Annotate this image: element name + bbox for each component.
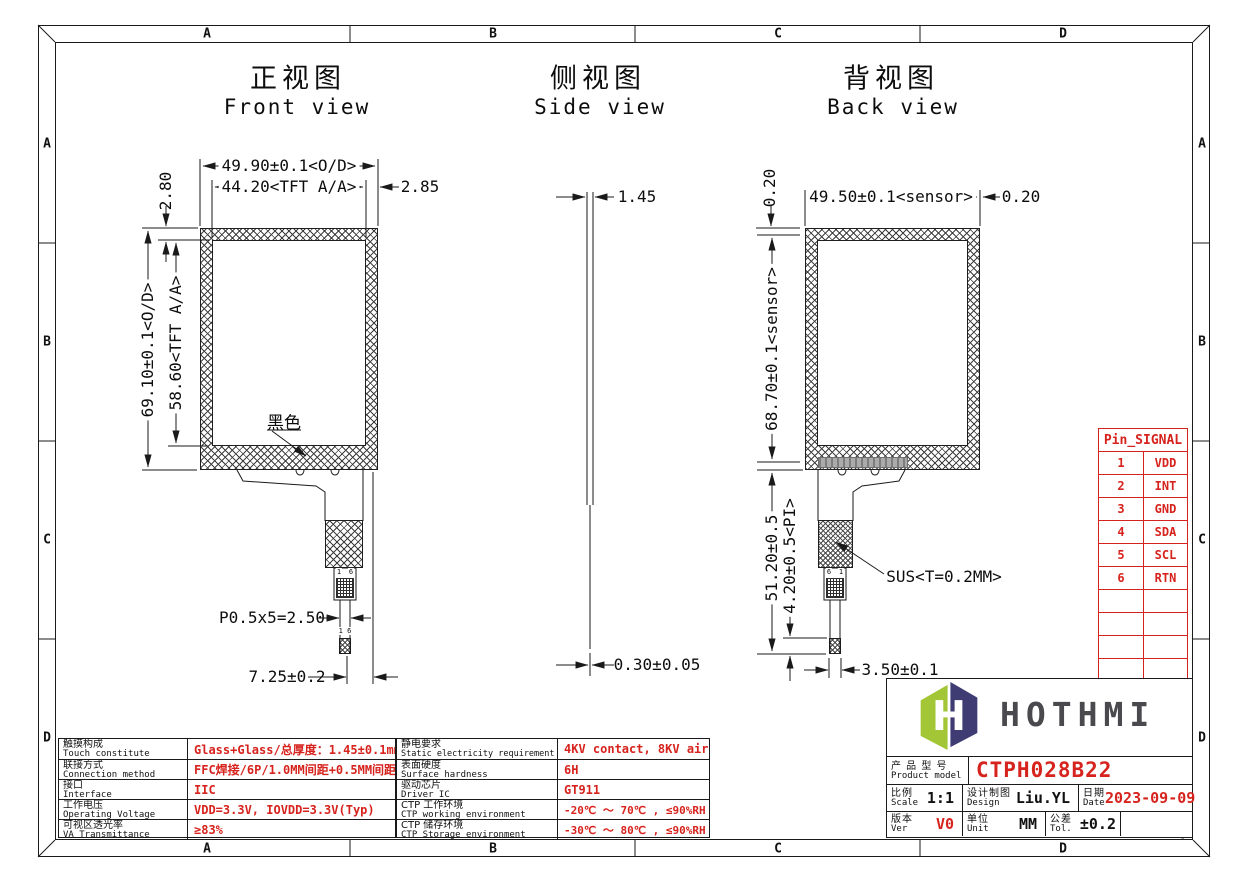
front-black-print-label: 黑色 xyxy=(267,409,301,434)
front-view-title-en: Front view xyxy=(224,95,370,119)
unit-value: MM xyxy=(1019,815,1037,833)
spec-row-surface-hardness: 表面硬度Surface hardness 6H xyxy=(397,759,709,779)
side-ffc-thickness-dim: 0.30±0.05 xyxy=(614,656,701,674)
pin-row-1: 1 VDD xyxy=(1099,451,1187,474)
frame-row-left-b: B xyxy=(43,335,51,350)
design-cell: 设计制图 Design Liu.YL xyxy=(963,785,1078,811)
svg-text:H: H xyxy=(932,692,966,740)
front-tail-stiffener xyxy=(325,520,363,568)
pin-row-empty xyxy=(1099,635,1187,658)
back-tail-tip xyxy=(829,638,841,654)
scale-value: 1:1 xyxy=(927,789,954,807)
design-value: Liu.YL xyxy=(1016,789,1070,807)
version-cell: 版本 Ver V0 xyxy=(887,812,962,836)
product-model-value: CTPH028B22 xyxy=(976,758,1112,782)
spec-row-static-electricity: 静电要求Static electricity requirement 4KV c… xyxy=(397,739,709,759)
date-value: 2023-09-09 xyxy=(1105,789,1195,807)
front-pin6-label: 6 xyxy=(348,568,354,576)
pin-signal-table: Pin_SIGNAL 1 VDD 2 INT 3 GND 4 SDA 5 SCL… xyxy=(1098,428,1188,680)
scale-cell: 比例 Scale 1:1 xyxy=(887,785,962,811)
back-sensor-width-dim: 49.50±0.1<sensor> xyxy=(806,188,976,206)
pin-row-5: 5 SCL xyxy=(1099,543,1187,566)
frame-col-top-c: C xyxy=(774,27,782,42)
frame-col-top-a: A xyxy=(203,27,211,42)
frame-row-right-a: A xyxy=(1198,137,1206,152)
back-sus-label: SUS<T=0.2MM> xyxy=(886,568,1002,586)
frame-row-right-c: C xyxy=(1198,533,1206,548)
back-margin-top-dim: 0.20 xyxy=(761,169,779,208)
frame-row-right-b: B xyxy=(1198,335,1206,350)
spec-table-left: 触摸构成Touch constitute Glass+Glass/总厚度：1.4… xyxy=(58,738,396,838)
back-bonding-pad xyxy=(818,457,908,468)
brand-name: HOTHMI xyxy=(1000,695,1155,734)
side-view-title-cn: 侧视图 xyxy=(550,57,646,96)
front-aa-width-dim: 44.20<TFT A/A> xyxy=(219,178,360,196)
frame-row-left-c: C xyxy=(43,533,51,548)
spec-row-working-environment: CTP 工作环境CTP working environment -20℃ ～ 7… xyxy=(397,799,709,819)
frame-col-top-b: B xyxy=(489,27,497,42)
back-view-sensor-area xyxy=(817,240,968,446)
front-aa-height-dim: 58.60<TFT A/A> xyxy=(167,273,185,414)
front-top-margin-dim: 2.80 xyxy=(157,172,175,211)
back-tip-width-dim: 3.50±0.1 xyxy=(861,661,938,679)
tolerance-cell: 公差 Tol. ±0.2 xyxy=(1046,812,1120,836)
pin-row-empty xyxy=(1099,612,1187,635)
front-od-width-dim: 49.90±0.1<O/D> xyxy=(219,157,360,175)
spec-row-storage-environment: CTP 储存环境CTP Storage environment -30℃ ～ 8… xyxy=(397,819,709,839)
back-pin1-label: 1 xyxy=(838,568,844,576)
back-connector-pins xyxy=(826,578,844,598)
frame-col-bottom-d: D xyxy=(1059,842,1067,857)
front-pin1-label: 1 xyxy=(336,568,342,576)
hothmi-logo-icon: H xyxy=(903,682,995,750)
spec-row-va-transmittance: 可视区透光率VA Transmittance ≥83% xyxy=(59,819,395,839)
front-view-title-cn: 正视图 xyxy=(250,57,346,96)
unit-cell: 单位 Unit MM xyxy=(963,812,1045,836)
front-tail-tip xyxy=(339,638,351,654)
spec-row-interface: 接口Interface IIC xyxy=(59,779,395,799)
spec-row-connection-method: 联接方式Connection method FFC焊接/6P/1.0MM间距+0… xyxy=(59,759,395,779)
front-pitch-dim: P0.5x5=2.50 xyxy=(219,609,325,627)
back-margin-right-dim: 0.20 xyxy=(1002,188,1041,206)
back-view-title-en: Back view xyxy=(827,95,959,119)
product-model-label: 产 品 型 号 Product model xyxy=(887,757,968,784)
version-value: V0 xyxy=(936,815,954,833)
pin-row-empty xyxy=(1099,589,1187,612)
engineering-drawing-page: A B C D A B C D A B C D A B C D 正视图 Fron… xyxy=(0,0,1250,883)
frame-col-bottom-c: C xyxy=(774,842,782,857)
frame-col-top-d: D xyxy=(1059,27,1067,42)
back-pi-length-dim: 4.20±0.5<PI> xyxy=(781,495,799,617)
front-tail-width-dim: 7.25±0.2 xyxy=(248,668,325,686)
frame-col-bottom-a: A xyxy=(203,842,211,857)
back-sus-stiffener xyxy=(818,520,853,568)
spec-table-middle: 静电要求Static electricity requirement 4KV c… xyxy=(396,738,710,838)
back-tail-length-dim: 51.20±0.5 xyxy=(763,512,781,605)
date-cell: 日期 Date 2023-09-09 xyxy=(1079,785,1192,811)
side-view-title-en: Side view xyxy=(534,95,666,119)
front-right-margin-dim: 2.85 xyxy=(401,178,440,196)
pin-row-2: 2 INT xyxy=(1099,474,1187,497)
frame-row-right-d: D xyxy=(1198,731,1206,746)
spec-row-touch-constitute: 触摸构成Touch constitute Glass+Glass/总厚度：1.4… xyxy=(59,739,395,759)
pin-row-3: 3 GND xyxy=(1099,497,1187,520)
front-connector-pins xyxy=(336,578,354,598)
back-view-title-cn: 背视图 xyxy=(843,57,939,96)
frame-row-left-d: D xyxy=(43,731,51,746)
back-pin6-label: 6 xyxy=(826,568,832,576)
front-od-height-dim: 69.10±0.1<O/D> xyxy=(139,280,157,421)
pin-table-header: Pin_SIGNAL xyxy=(1099,429,1187,451)
pin-row-4: 4 SDA xyxy=(1099,520,1187,543)
front-tip-pins-label: 1 6 xyxy=(338,627,353,635)
side-thickness-dim: 1.45 xyxy=(618,188,657,206)
spec-row-operating-voltage: 工作电压Operating Voltage VDD=3.3V, IOVDD=3.… xyxy=(59,799,395,819)
tolerance-value: ±0.2 xyxy=(1080,815,1116,833)
back-sensor-height-dim: 68.70±0.1<sensor> xyxy=(763,264,781,434)
spec-row-driver-ic: 驱动芯片Driver IC GT911 xyxy=(397,779,709,799)
frame-col-bottom-b: B xyxy=(489,842,497,857)
frame-row-left-a: A xyxy=(43,137,51,152)
pin-row-6: 6 RTN xyxy=(1099,566,1187,589)
